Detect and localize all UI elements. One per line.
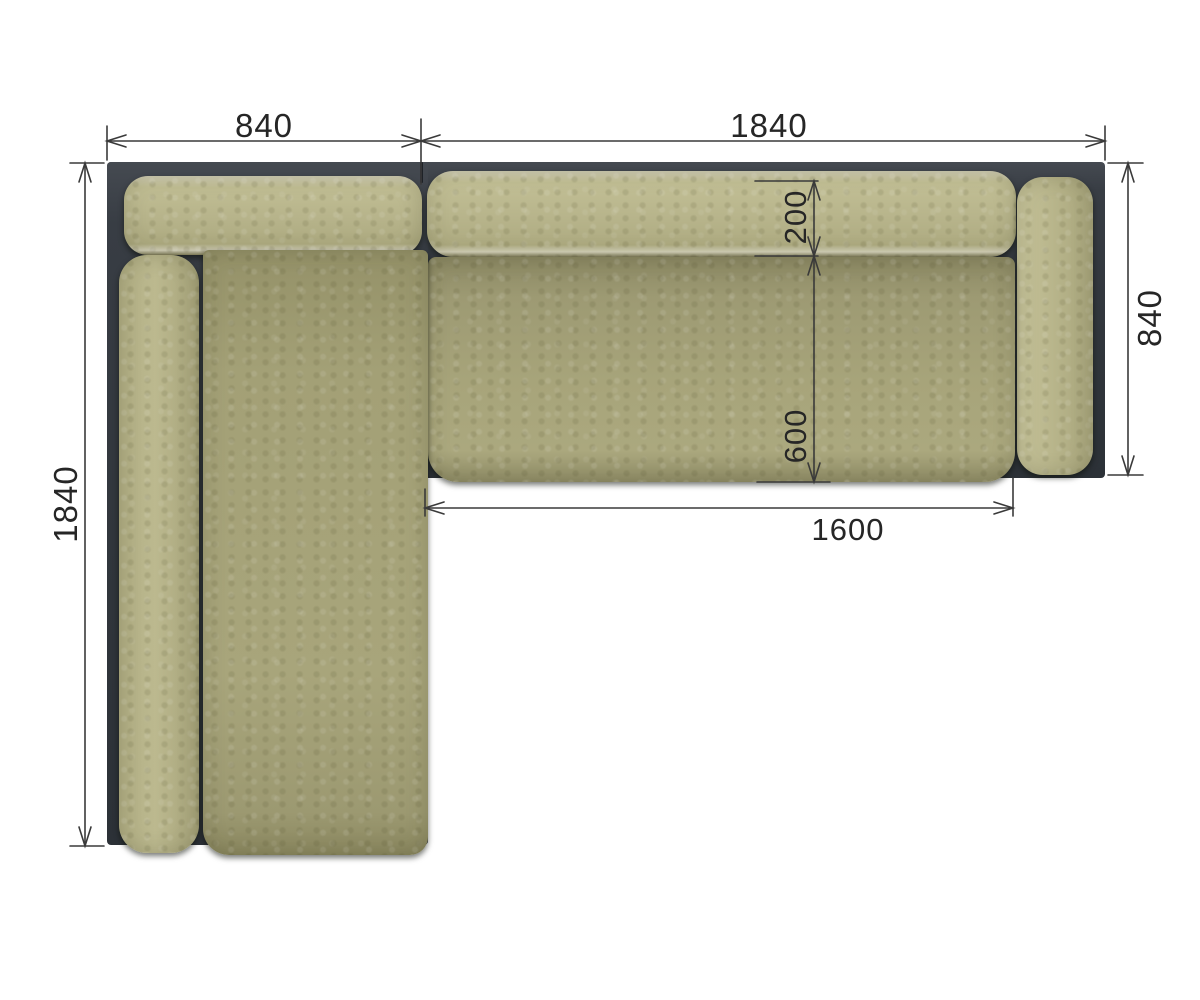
- dim-label-left-chaise-length: 1840: [47, 465, 85, 542]
- dim-label-seat-width: 1600: [812, 512, 885, 548]
- dim-label-right-side-depth: 840: [1131, 289, 1169, 347]
- dim-label-seat-depth: 600: [778, 409, 814, 464]
- dim-label-top-chaise-width: 840: [235, 107, 293, 145]
- dim-label-top-main-width: 1840: [730, 107, 807, 145]
- dimension-lines: [0, 0, 1200, 1000]
- dim-label-back-cushion-depth: 200: [778, 190, 814, 245]
- sofa-dimension-drawing: 840 1840 1840 840 200 600 1600: [0, 0, 1200, 1000]
